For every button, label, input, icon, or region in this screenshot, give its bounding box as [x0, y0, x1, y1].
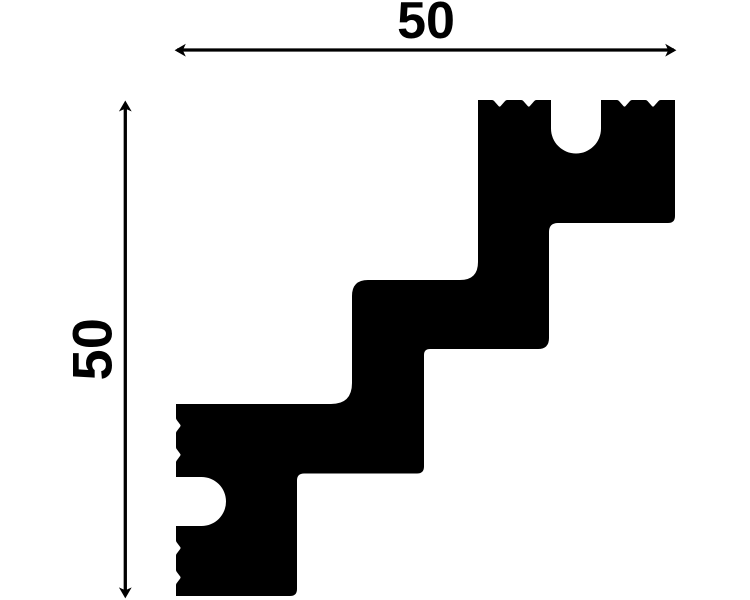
svg-text:50: 50 [397, 0, 455, 50]
svg-text:50: 50 [61, 318, 124, 380]
